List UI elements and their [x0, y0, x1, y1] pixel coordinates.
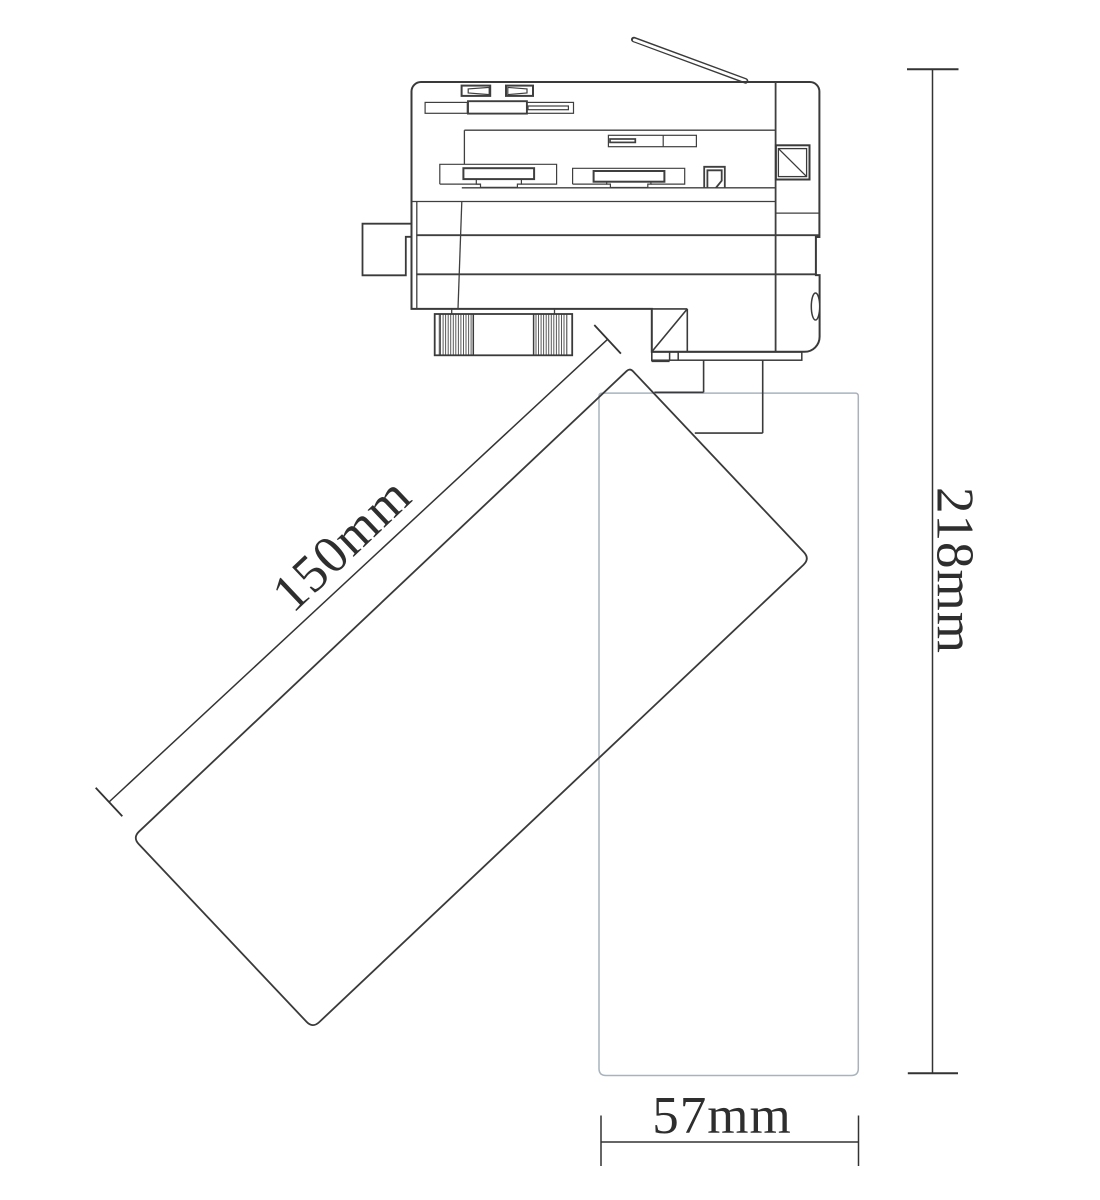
svg-text:57mm: 57mm [652, 1087, 791, 1145]
svg-text:218mm: 218mm [926, 487, 984, 654]
